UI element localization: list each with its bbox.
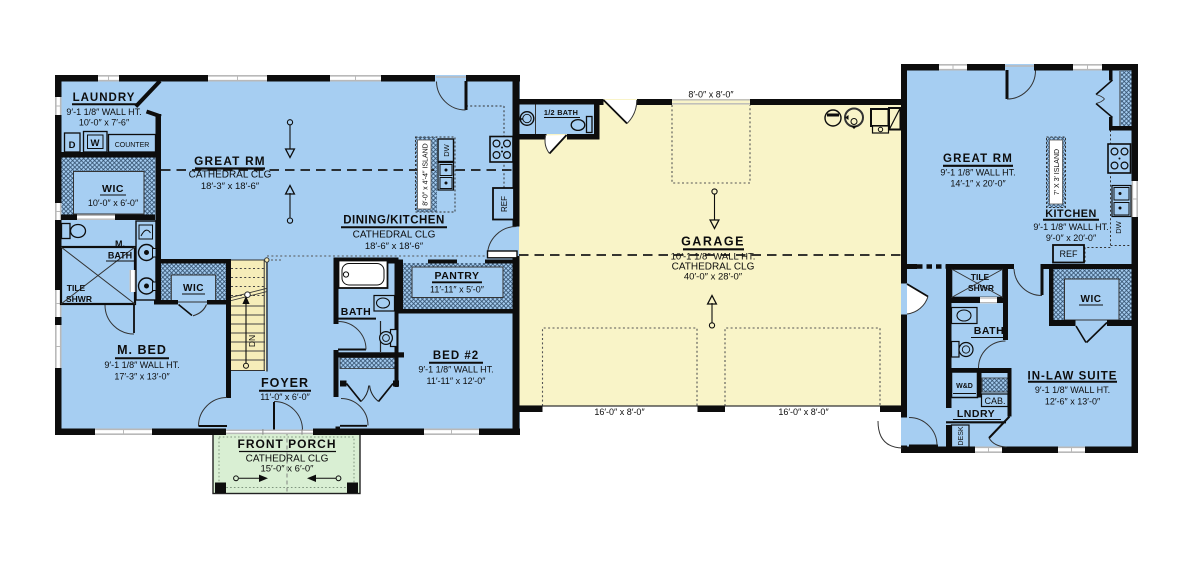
svg-text:GREAT RM: GREAT RM bbox=[943, 153, 1013, 165]
svg-text:11′-0″ x 6′-0″: 11′-0″ x 6′-0″ bbox=[260, 392, 310, 402]
svg-text:9′-1 1/8″ WALL HT.: 9′-1 1/8″ WALL HT. bbox=[66, 107, 141, 117]
svg-text:DN: DN bbox=[247, 335, 257, 347]
svg-text:M. BED: M. BED bbox=[117, 343, 167, 357]
svg-text:1/2 BATH: 1/2 BATH bbox=[544, 108, 578, 117]
svg-text:W&D: W&D bbox=[956, 383, 973, 390]
svg-text:WIC: WIC bbox=[102, 183, 124, 195]
svg-text:11′-11″ x 5′-0″: 11′-11″ x 5′-0″ bbox=[430, 285, 485, 295]
svg-text:WIC: WIC bbox=[183, 283, 204, 294]
svg-text:DESK: DESK bbox=[958, 426, 965, 445]
svg-text:M.: M. bbox=[115, 239, 125, 249]
svg-text:TILE: TILE bbox=[971, 272, 990, 282]
svg-text:SHWR: SHWR bbox=[66, 294, 92, 304]
svg-text:7′ X 3′ ISLAND: 7′ X 3′ ISLAND bbox=[1054, 149, 1061, 195]
svg-text:18′-3″ x 18′-6″: 18′-3″ x 18′-6″ bbox=[201, 181, 260, 192]
svg-text:9′-1 1/8″ WALL HT.: 9′-1 1/8″ WALL HT. bbox=[104, 360, 179, 370]
svg-text:GARAGE: GARAGE bbox=[681, 235, 745, 249]
svg-text:LAUNDRY: LAUNDRY bbox=[73, 92, 136, 104]
svg-text:17′-3″ x 13′-0″: 17′-3″ x 13′-0″ bbox=[114, 372, 170, 382]
svg-text:9′-0″ x 20′-0″: 9′-0″ x 20′-0″ bbox=[1046, 233, 1097, 243]
svg-text:12′-6″ x 13′-0″: 12′-6″ x 13′-0″ bbox=[1045, 397, 1101, 407]
svg-text:BATH: BATH bbox=[341, 306, 371, 318]
svg-text:LNDRY: LNDRY bbox=[957, 408, 995, 420]
svg-text:BED #2: BED #2 bbox=[433, 350, 479, 362]
svg-text:8′-0″ x 4′-4″ ISLAND: 8′-0″ x 4′-4″ ISLAND bbox=[423, 143, 430, 205]
svg-text:9′-1 1/8″ WALL HT.: 9′-1 1/8″ WALL HT. bbox=[940, 168, 1015, 178]
svg-text:KITCHEN: KITCHEN bbox=[1045, 208, 1097, 220]
svg-text:CAB.: CAB. bbox=[984, 396, 1005, 406]
svg-text:40′-0″ x 28′-0″: 40′-0″ x 28′-0″ bbox=[684, 272, 743, 283]
svg-text:8′-0″ x 8′-0″: 8′-0″ x 8′-0″ bbox=[688, 90, 734, 100]
svg-text:BATH: BATH bbox=[108, 251, 132, 261]
svg-text:TILE: TILE bbox=[67, 283, 86, 293]
svg-text:BATH: BATH bbox=[974, 325, 1004, 337]
svg-text:16′-0″ x 8′-0″: 16′-0″ x 8′-0″ bbox=[594, 407, 645, 417]
svg-text:SHWR: SHWR bbox=[968, 283, 994, 293]
svg-text:16′-0″ x 8′-0″: 16′-0″ x 8′-0″ bbox=[778, 407, 829, 417]
svg-text:9′-1 1/8″ WALL HT.: 9′-1 1/8″ WALL HT. bbox=[1035, 385, 1110, 395]
svg-text:DW: DW bbox=[1114, 220, 1123, 233]
svg-text:9′-1 1/8″ WALL HT.: 9′-1 1/8″ WALL HT. bbox=[418, 365, 493, 375]
svg-text:GREAT RM: GREAT RM bbox=[194, 154, 266, 168]
svg-text:COUNTER: COUNTER bbox=[115, 142, 150, 149]
svg-text:11′-11″ x 12′-0″: 11′-11″ x 12′-0″ bbox=[427, 376, 487, 386]
svg-text:CATHEDRAL CLG: CATHEDRAL CLG bbox=[353, 230, 436, 241]
svg-text:DINING/KITCHEN: DINING/KITCHEN bbox=[343, 215, 445, 227]
svg-text:15′-0″ x 6′-0″: 15′-0″ x 6′-0″ bbox=[260, 464, 314, 475]
svg-text:14′-1″ x 20′-0″: 14′-1″ x 20′-0″ bbox=[950, 179, 1006, 189]
svg-text:FRONT PORCH: FRONT PORCH bbox=[238, 437, 337, 451]
svg-text:REF: REF bbox=[1060, 249, 1079, 259]
svg-text:PANTRY: PANTRY bbox=[435, 270, 480, 282]
svg-text:DW: DW bbox=[442, 143, 451, 156]
svg-text:18′-6″ x 18′-6″: 18′-6″ x 18′-6″ bbox=[365, 241, 424, 252]
svg-text:WIC: WIC bbox=[1081, 294, 1102, 305]
svg-text:REF: REF bbox=[500, 196, 509, 212]
svg-text:CATHEDRAL CLG: CATHEDRAL CLG bbox=[189, 170, 272, 181]
svg-text:FOYER: FOYER bbox=[261, 376, 309, 390]
svg-text:10′-0″ x 6′-0″: 10′-0″ x 6′-0″ bbox=[88, 198, 139, 208]
svg-text:W: W bbox=[91, 138, 100, 149]
svg-text:IN-LAW SUITE: IN-LAW SUITE bbox=[1028, 371, 1118, 383]
svg-text:D: D bbox=[69, 140, 76, 151]
svg-text:9′-1 1/8″ WALL HT.: 9′-1 1/8″ WALL HT. bbox=[1033, 222, 1108, 232]
svg-text:10′-0″ x 7′-6″: 10′-0″ x 7′-6″ bbox=[79, 118, 130, 128]
